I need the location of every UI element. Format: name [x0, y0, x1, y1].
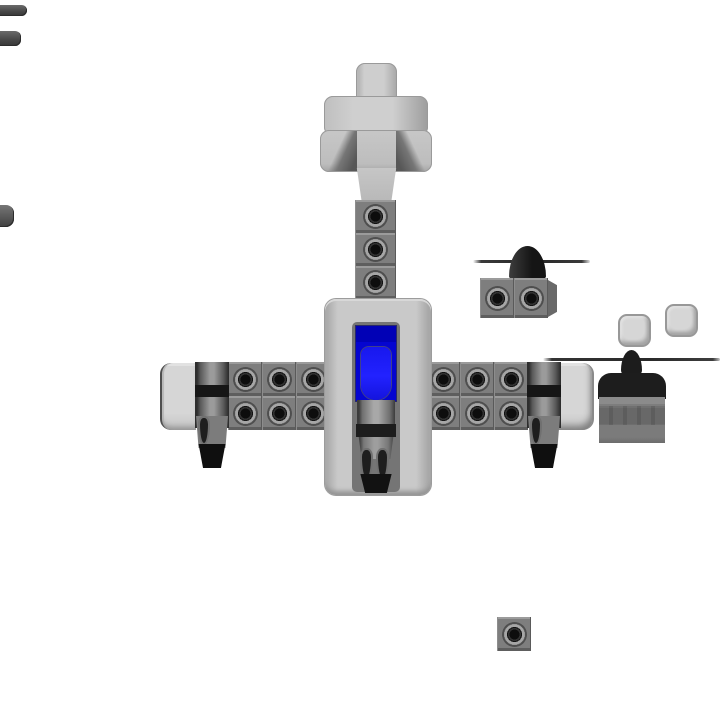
spine-stud-block[interactable] [355, 266, 396, 299]
nacelle-black-band [195, 385, 229, 397]
nacelle-exhaust [195, 416, 229, 468]
left-engine-nacelle[interactable] [195, 362, 229, 468]
left-wing-stud-block[interactable] [262, 362, 296, 396]
spine-stud-block[interactable] [355, 233, 396, 266]
right-wing-stud-block[interactable] [460, 396, 494, 430]
connector-stud-icon [465, 367, 490, 392]
fuselage-black-band [356, 424, 396, 437]
right-wing-stud-block[interactable] [494, 362, 528, 396]
connector-stud-icon [499, 367, 524, 392]
connector-stud-icon [233, 401, 258, 426]
nacelle-exhaust-prongs [196, 416, 228, 448]
nacelle-black-band [527, 385, 561, 397]
left-wing-stud-block[interactable] [228, 396, 262, 430]
fuselage-panel[interactable] [325, 299, 431, 495]
connector-stud-icon [431, 401, 456, 426]
connector-stud-icon [363, 270, 388, 295]
nacelle-exhaust-prongs [528, 416, 560, 448]
right-wing-stud-block[interactable] [426, 396, 460, 430]
connector-stud-icon [485, 286, 510, 311]
nacelle-exhaust-tip [530, 444, 558, 468]
connector-stud-icon [363, 204, 388, 229]
canopy-windshield [361, 347, 391, 400]
connector-stud-icon [267, 401, 292, 426]
connector-stud-icon [519, 286, 544, 311]
exhaust-prong-icon [530, 416, 542, 445]
prop-mount-stud-block[interactable] [480, 278, 514, 318]
fuselage-engine-body[interactable] [357, 400, 395, 424]
left-wing-stud-block[interactable] [228, 362, 262, 396]
exhaust-prong-icon [198, 416, 210, 445]
right-engine-nacelle[interactable] [527, 362, 561, 468]
right-wing-stud-block[interactable] [426, 362, 460, 396]
connector-stud-icon [301, 401, 326, 426]
nacelle-exhaust-tip [198, 444, 226, 468]
connector-stud-icon [431, 367, 456, 392]
connector-stud-icon [363, 237, 388, 262]
connector-stud-icon [233, 367, 258, 392]
right-wing-stud-block[interactable] [460, 362, 494, 396]
connector-stud-icon [267, 367, 292, 392]
left-wing-stud-block[interactable] [262, 396, 296, 430]
nacelle-exhaust [527, 416, 561, 468]
connector-stud-icon [465, 401, 490, 426]
connector-stud-icon [502, 622, 527, 647]
right-wing-stud-block[interactable] [494, 396, 528, 430]
connector-stud-icon [301, 367, 326, 392]
loose-single-stud-block[interactable] [497, 617, 531, 651]
prop-mount-stud-block[interactable] [514, 278, 548, 318]
spine-stud-block[interactable] [355, 200, 396, 233]
connector-stud-icon [499, 401, 524, 426]
cockpit-canopy[interactable] [355, 325, 397, 402]
build-area-canvas[interactable] [0, 0, 720, 720]
